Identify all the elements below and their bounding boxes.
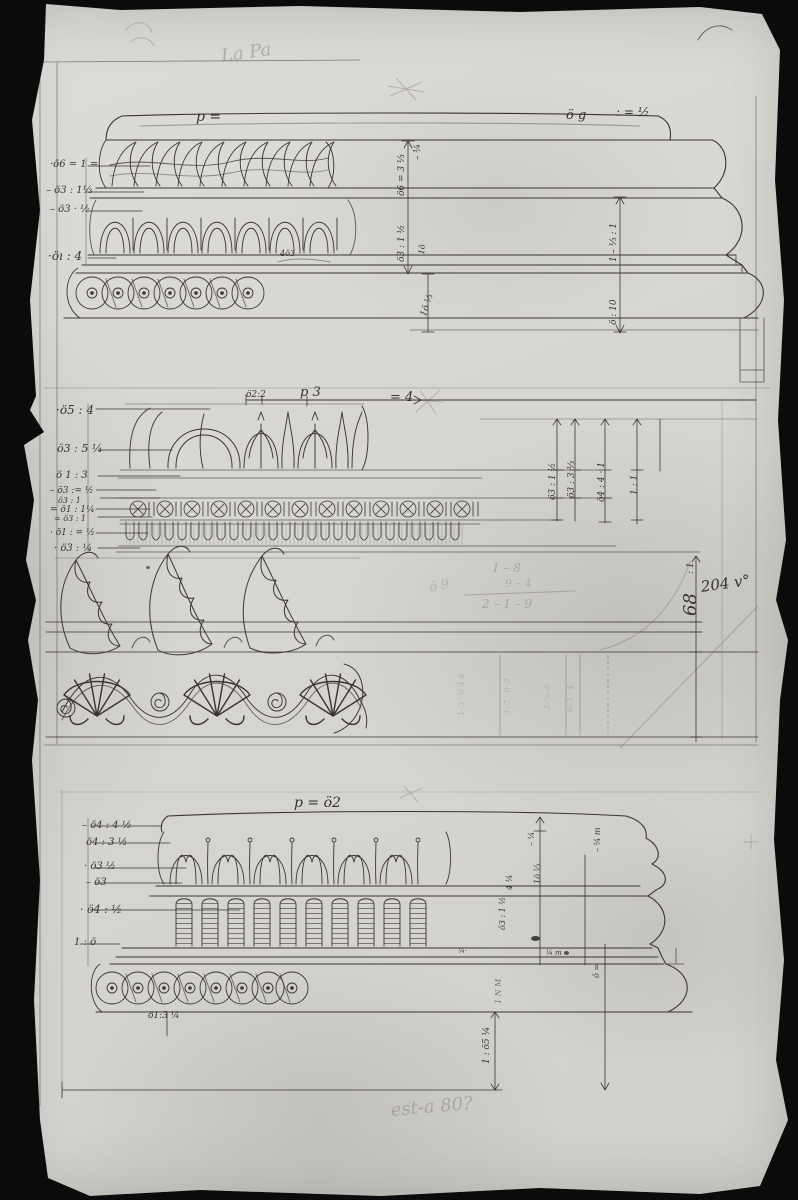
palmette-frieze	[57, 664, 367, 733]
pencil-sketch-marks	[126, 23, 758, 849]
lotus-bud-band	[158, 832, 451, 884]
broad-leaf	[168, 414, 240, 468]
frame-lines	[40, 60, 770, 1106]
reeded-flute-band	[176, 899, 426, 946]
bottom-base-study	[62, 812, 692, 1099]
bead-and-reel-band	[130, 501, 478, 517]
manuscript-sheet: La Pap =ö g: = ½·ö6 = 1 =– ö3 : 1⅓– ö3 ·…	[0, 0, 798, 1200]
guilloche-torus	[67, 268, 264, 318]
ink-spot	[531, 936, 540, 941]
acanthus-scroll	[61, 546, 334, 655]
architectural-drawing	[0, 0, 798, 1200]
strigil-leaf-band	[99, 140, 336, 188]
dimension-lines	[88, 404, 702, 742]
top-base-study	[64, 113, 764, 382]
section-lines	[46, 395, 758, 737]
leaf-and-dart-band	[90, 200, 356, 262]
ink-spot	[146, 566, 150, 569]
plus-mark	[744, 835, 758, 849]
tongue-band	[126, 522, 464, 545]
middle-capital-study	[46, 395, 758, 742]
star-sketch-top	[388, 78, 424, 100]
photo-frame: La Pap =ö g: = ½·ö6 = 1 =– ö3 : 1⅓– ö3 ·…	[0, 0, 798, 1200]
ink-spot	[564, 951, 569, 955]
guilloche-torus	[91, 964, 308, 1012]
star-sketch-bottom	[400, 786, 422, 802]
profile-outline	[64, 113, 764, 382]
anthemion-band	[130, 406, 368, 470]
